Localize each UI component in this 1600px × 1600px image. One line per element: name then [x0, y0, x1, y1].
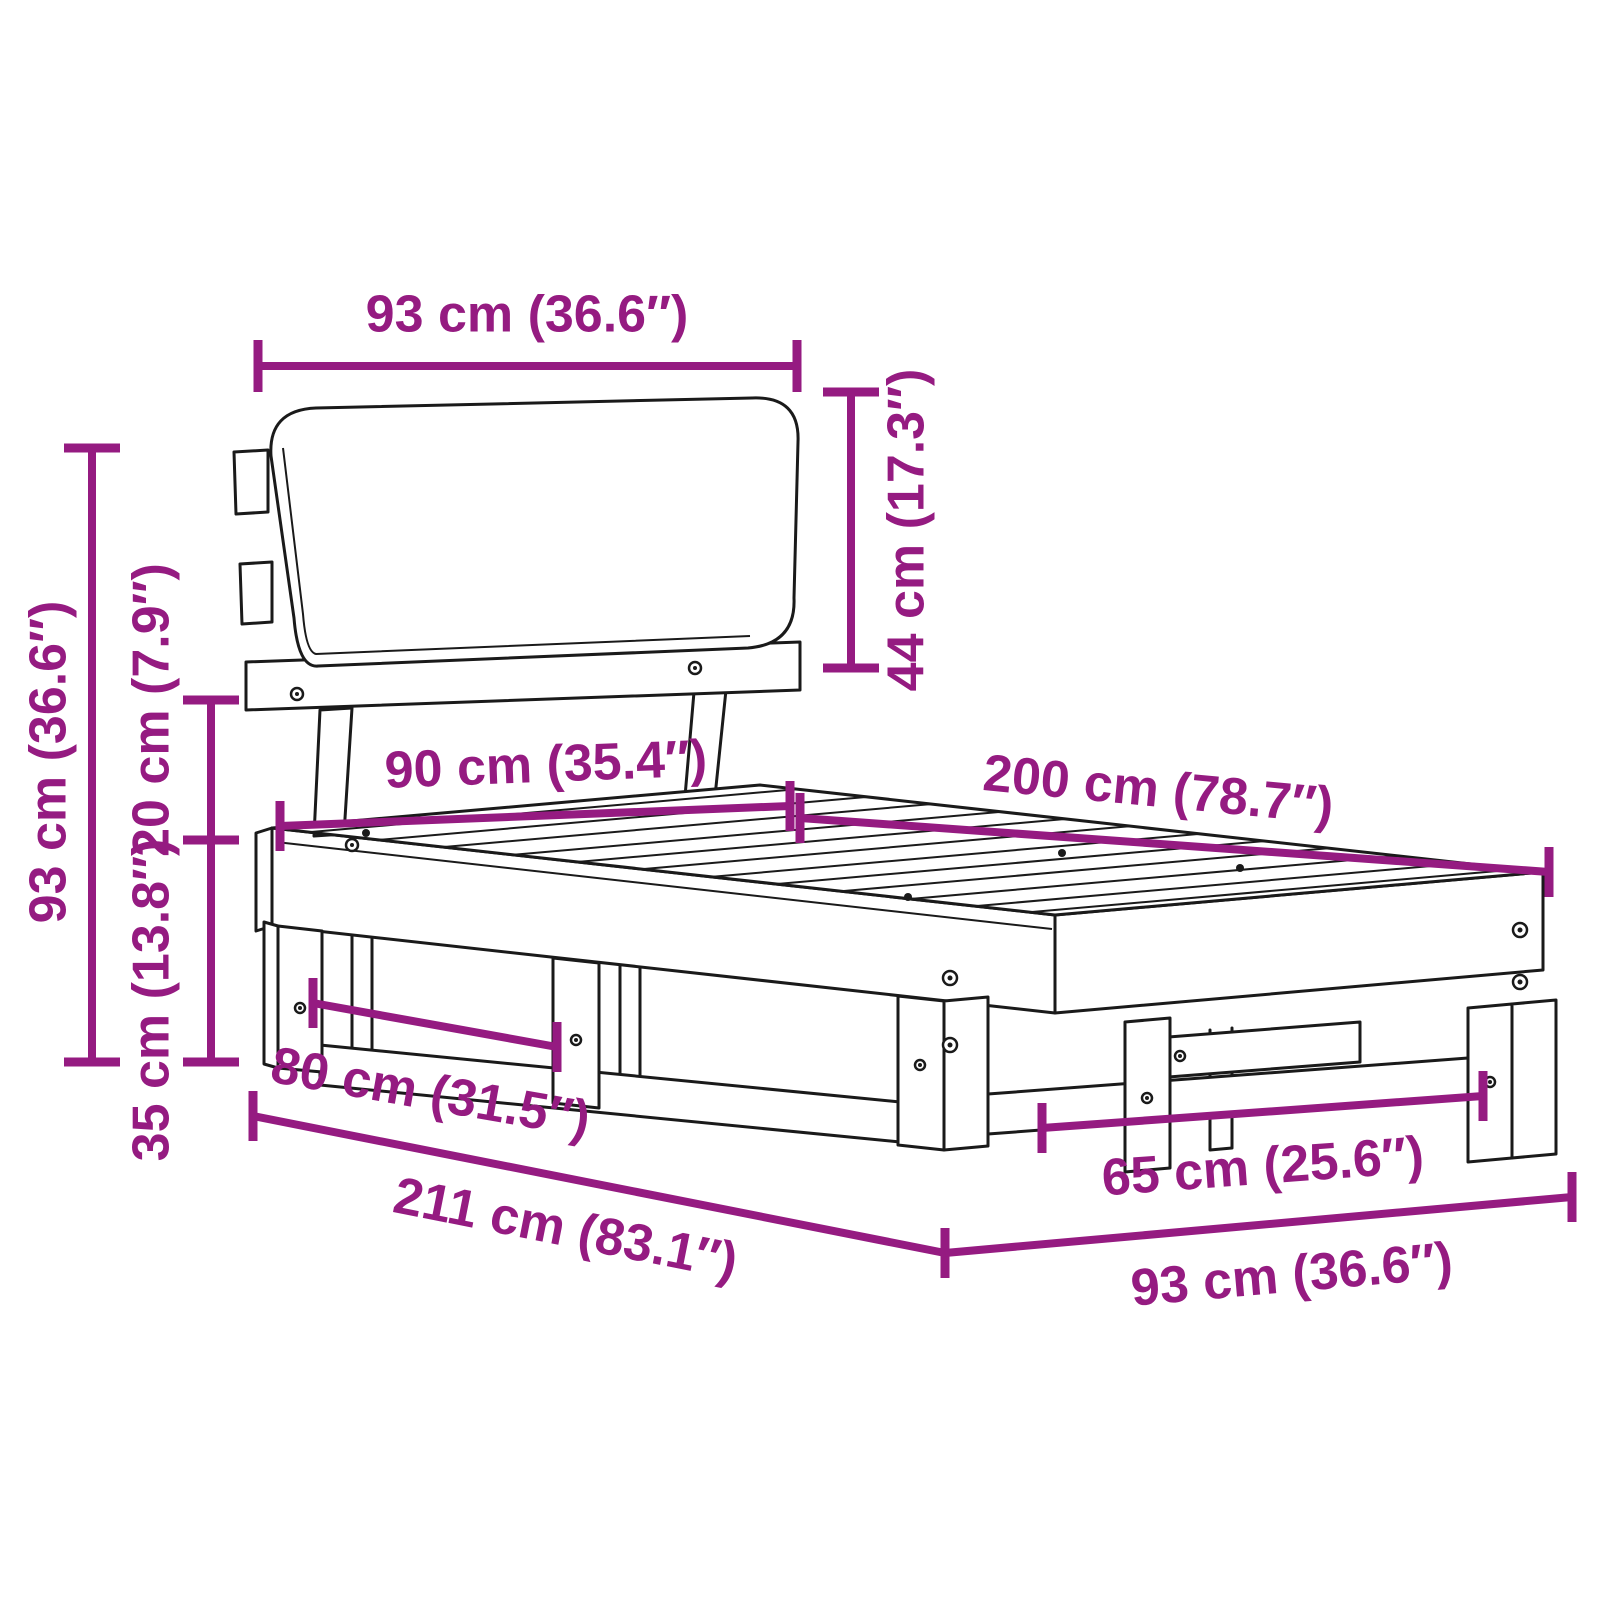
- dimension-diagram-canvas: 93 cm (36.6″) 44 cm (17.3″) 93 cm (36.6″…: [0, 0, 1600, 1600]
- headboard-cushion: [271, 398, 798, 666]
- dim-headboard-width: 93 cm (36.6″): [258, 286, 797, 392]
- dim-headboard-gap-label: 20 cm (7.9″): [123, 563, 181, 857]
- dim-total-length-label: 211 cm (83.1″): [389, 1166, 742, 1291]
- dim-total-height: 93 cm (36.6″): [20, 448, 120, 1062]
- dim-front-leg-spacing: 80 cm (31.5″): [267, 978, 595, 1149]
- dim-headboard-width-label: 93 cm (36.6″): [366, 286, 689, 344]
- dim-foot-width-label: 93 cm (36.6″): [1128, 1232, 1454, 1318]
- headboard-brackets: [234, 450, 272, 624]
- dim-gap-and-frame-height: 20 cm (7.9″) 35 cm (13.8″): [123, 563, 239, 1161]
- dim-headboard-height: 44 cm (17.3″): [823, 369, 936, 692]
- dim-frame-height-label: 35 cm (13.8″): [123, 839, 181, 1162]
- bed-dimension-diagram: 93 cm (36.6″) 44 cm (17.3″) 93 cm (36.6″…: [0, 0, 1600, 1600]
- dim-total-height-label: 93 cm (36.6″): [20, 601, 78, 924]
- dim-headboard-height-label: 44 cm (17.3″): [878, 369, 936, 692]
- dim-bed-width-label: 90 cm (35.4″): [384, 730, 709, 800]
